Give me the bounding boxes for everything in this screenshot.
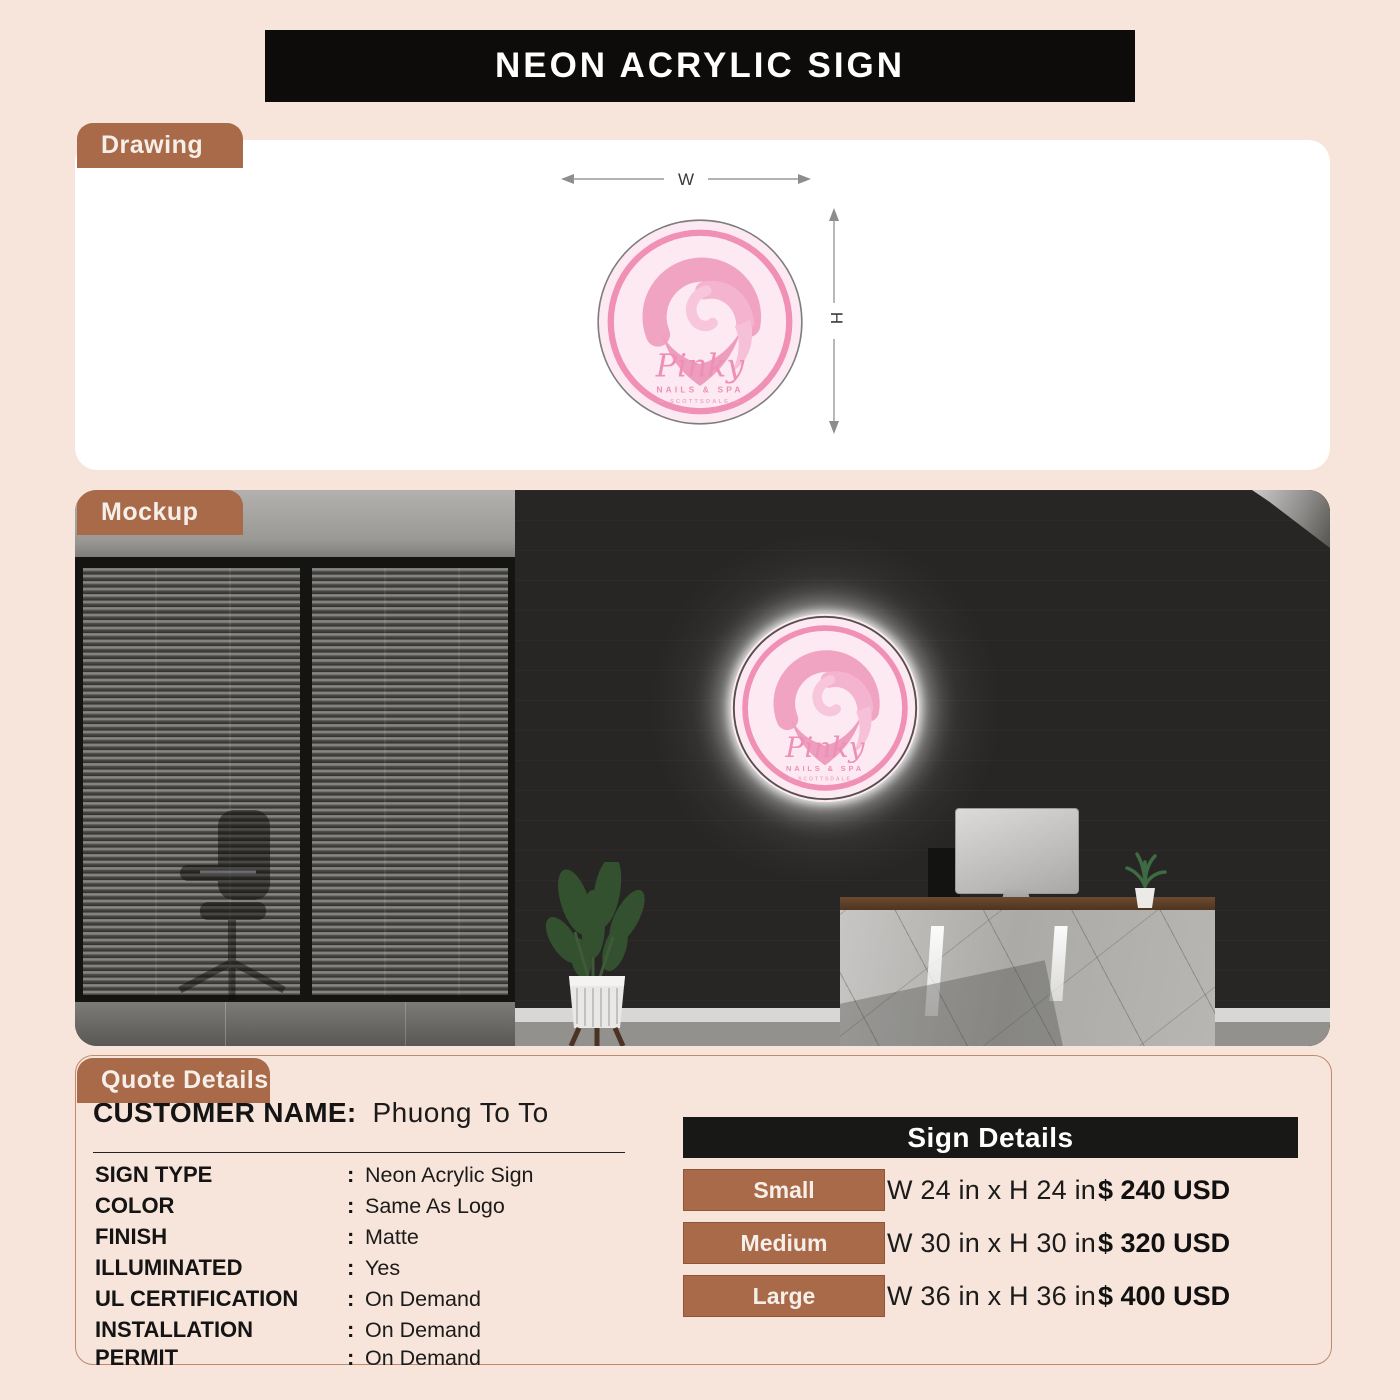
- glass-frame: [508, 557, 515, 1002]
- drawing-section-label: Drawing: [77, 131, 203, 160]
- tile-floor: [75, 1002, 515, 1046]
- spec-value: On Demand: [365, 1287, 481, 1312]
- monitor-screen: [955, 808, 1079, 894]
- spec-row-finish: FINISH : Matte: [95, 1224, 655, 1255]
- spec-row-sign-type: SIGN TYPE : Neon Acrylic Sign: [95, 1162, 655, 1193]
- pinky-logo-mockup: Pinky NAILS & SPA — SCOTTSDALE —: [731, 614, 919, 802]
- spec-colon: :: [347, 1286, 365, 1312]
- sign-details-title: Sign Details: [907, 1122, 1073, 1154]
- sign-details-table: Sign Details Small W 24 in x H 24 in $ 2…: [683, 1117, 1298, 1317]
- desk-marble-front: [840, 910, 1215, 1046]
- glass-frame: [75, 557, 515, 568]
- sign-drawing-logo: Pinky NAILS & SPA — SCOTTSDALE —: [595, 217, 805, 427]
- spec-colon: :: [347, 1224, 365, 1250]
- glass-frame: [300, 557, 312, 1002]
- spec-label: PERMIT: [95, 1345, 347, 1371]
- size-row-small: Small W 24 in x H 24 in $ 240 USD: [683, 1169, 1298, 1211]
- desk-plant: [1121, 850, 1169, 910]
- title-banner: NEON ACRYLIC SIGN: [265, 30, 1135, 102]
- size-price: $ 400 USD: [1098, 1281, 1298, 1312]
- mockup-section-label: Mockup: [77, 498, 198, 527]
- spec-colon: :: [347, 1193, 365, 1219]
- spec-value: On Demand: [365, 1318, 481, 1343]
- spec-row-installation: INSTALLATION : On Demand: [95, 1317, 655, 1345]
- size-badge-large: Large: [683, 1275, 885, 1317]
- spec-value: Same As Logo: [365, 1194, 505, 1219]
- width-dimension-label: W: [678, 170, 694, 189]
- drawing-canvas: W H Pinky: [75, 140, 1330, 470]
- reception-desk: [840, 897, 1215, 1046]
- spec-value: Yes: [365, 1256, 400, 1281]
- spec-row-ul-certification: UL CERTIFICATION : On Demand: [95, 1286, 655, 1317]
- marble-highlight: [925, 926, 944, 1016]
- spec-row-color: COLOR : Same As Logo: [95, 1193, 655, 1224]
- mockup-scene: Pinky NAILS & SPA — SCOTTSDALE —: [75, 490, 1330, 1046]
- blinds-panel: [312, 568, 508, 995]
- quote-section-tab: Quote Details: [77, 1058, 270, 1103]
- spec-label: INSTALLATION: [95, 1317, 347, 1343]
- height-dimension-label: H: [827, 312, 845, 324]
- spec-colon: :: [347, 1255, 365, 1281]
- logo-name-text: Pinky: [655, 349, 746, 385]
- height-dimension-arrow: H: [823, 208, 845, 434]
- size-price: $ 320 USD: [1098, 1228, 1298, 1259]
- spec-label: ILLUMINATED: [95, 1255, 347, 1281]
- pinky-logo-drawing: Pinky NAILS & SPA — SCOTTSDALE —: [595, 217, 805, 427]
- spec-value: Neon Acrylic Sign: [365, 1163, 534, 1188]
- spec-colon: :: [347, 1317, 365, 1343]
- office-chair-silhouette: [160, 810, 300, 1005]
- size-dimensions: W 30 in x H 30 in: [885, 1228, 1098, 1259]
- width-dimension-arrow: W: [561, 168, 811, 190]
- logo-subtitle-text: NAILS & SPA: [656, 384, 743, 394]
- page-title: NEON ACRYLIC SIGN: [495, 46, 905, 86]
- spec-label: SIGN TYPE: [95, 1162, 347, 1188]
- spec-colon: :: [347, 1162, 365, 1188]
- potted-plant: [523, 862, 673, 1046]
- drawing-section-tab: Drawing: [77, 123, 243, 168]
- size-dimensions: W 24 in x H 24 in: [885, 1175, 1098, 1206]
- spec-value: On Demand: [365, 1346, 481, 1371]
- spec-label: COLOR: [95, 1193, 347, 1219]
- spec-colon: :: [347, 1345, 365, 1371]
- marble-highlight: [1049, 926, 1067, 1001]
- mockup-section-tab: Mockup: [77, 490, 243, 535]
- spec-label: FINISH: [95, 1224, 347, 1250]
- spec-list: SIGN TYPE : Neon Acrylic Sign COLOR : Sa…: [95, 1162, 655, 1373]
- spec-value: Matte: [365, 1225, 419, 1250]
- customer-underline: [93, 1152, 625, 1153]
- logo-subtitle-text: NAILS & SPA: [786, 764, 864, 773]
- customer-name-value: Phuong To To: [372, 1097, 548, 1129]
- neon-sign-mockup: Pinky NAILS & SPA — SCOTTSDALE —: [731, 614, 919, 802]
- quote-section-label: Quote Details: [77, 1066, 269, 1095]
- spec-row-permit: PERMIT : On Demand: [95, 1345, 655, 1373]
- quote-sheet-page: NEON ACRYLIC SIGN Drawing W H: [0, 0, 1400, 1400]
- size-badge-medium: Medium: [683, 1222, 885, 1264]
- size-row-large: Large W 36 in x H 36 in $ 400 USD: [683, 1275, 1298, 1317]
- logo-tagline-text: — SCOTTSDALE —: [788, 776, 862, 782]
- size-row-medium: Medium W 30 in x H 30 in $ 320 USD: [683, 1222, 1298, 1264]
- size-badge-small: Small: [683, 1169, 885, 1211]
- spec-label: UL CERTIFICATION: [95, 1286, 347, 1312]
- spec-row-illuminated: ILLUMINATED : Yes: [95, 1255, 655, 1286]
- logo-tagline-text: — SCOTTSDALE —: [658, 399, 741, 405]
- sign-details-header: Sign Details: [683, 1117, 1298, 1158]
- glass-frame: [75, 557, 83, 1002]
- computer-monitor: [955, 808, 1077, 910]
- size-dimensions: W 36 in x H 36 in: [885, 1281, 1098, 1312]
- size-price: $ 240 USD: [1098, 1175, 1298, 1206]
- logo-name-text: Pinky: [784, 731, 865, 764]
